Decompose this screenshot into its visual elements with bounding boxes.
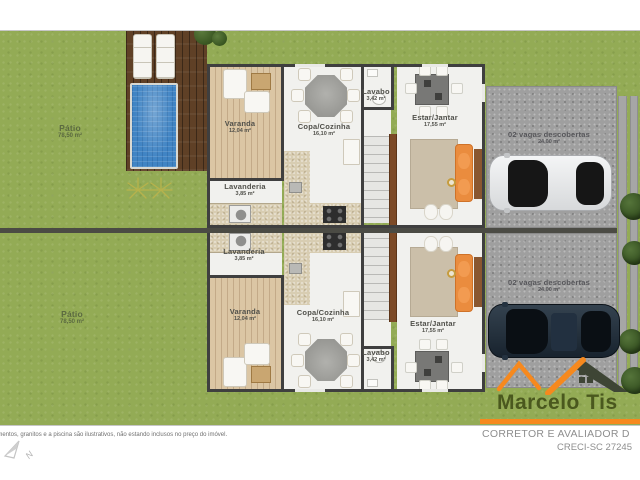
room-label-patio-top: Pátio78,50 m² — [58, 123, 82, 139]
brand-underline — [480, 419, 640, 424]
room-label-lavanderia-bottom: Lavanderia3,85 m² — [223, 247, 265, 262]
parking-label-bottom: 02 vagas descobertas24,00 m² — [508, 278, 590, 293]
window — [295, 64, 325, 67]
ornamental-grass-icon — [149, 177, 173, 201]
door-opening — [482, 84, 485, 102]
north-compass: N — [2, 437, 38, 469]
exterior-wall — [207, 64, 485, 228]
ornamental-grass-icon — [126, 177, 150, 201]
property-divider-wall — [0, 228, 617, 233]
north-arrow-icon — [2, 437, 28, 465]
unit-top-graphics — [207, 64, 485, 228]
room-label-copa-top: Copa/Cozinha16,10 m² — [298, 122, 350, 137]
tree-icon — [622, 241, 640, 265]
room-label-lavabo-bottom: Lavabo3,42 m² — [362, 348, 389, 363]
room-label-varanda-bottom: Varanda12,04 m² — [230, 307, 261, 322]
plant-icon — [212, 31, 227, 46]
room-label-estar-bottom: Estar/Jantar17,55 m² — [410, 319, 456, 334]
parking-label-top: 02 vagas descobertas24,00 m² — [508, 130, 590, 145]
brand-name: Marcelo Tis — [497, 391, 618, 415]
floorplan-page: Pátio78,50 m² Pátio78,50 m² Varanda12,04… — [0, 0, 640, 480]
room-label-copa-bottom: Copa/Cozinha16,10 m² — [297, 308, 349, 323]
brand-subtitle: CORRETOR E AVALIADOR D — [482, 428, 630, 440]
room-label-lavanderia-top: Lavanderia3,85 m² — [224, 182, 266, 197]
pool-lounger — [156, 34, 175, 79]
pool-lounger — [133, 34, 152, 79]
brand-license: CRECI-SC 27245 — [557, 442, 632, 453]
tree-icon — [619, 329, 640, 354]
tree-icon — [620, 193, 640, 220]
room-label-varanda-top: Varanda12,04 m² — [225, 119, 256, 134]
brand-roof-logo-icon — [488, 355, 638, 395]
car-top-view-light — [489, 155, 612, 211]
window — [295, 389, 325, 392]
room-label-patio-bottom: Pátio78,50 m² — [60, 309, 84, 325]
window — [422, 389, 448, 392]
room-label-lavabo-top: Lavabo3,42 m² — [362, 87, 389, 102]
swimming-pool — [130, 83, 178, 169]
car-top-view-dark — [488, 304, 620, 358]
window — [422, 64, 448, 67]
room-label-estar-top: Estar/Jantar17,55 m² — [412, 113, 458, 128]
brand-watermark: Marcelo Tis CORRETOR E AVALIADOR D CRECI… — [480, 355, 640, 460]
